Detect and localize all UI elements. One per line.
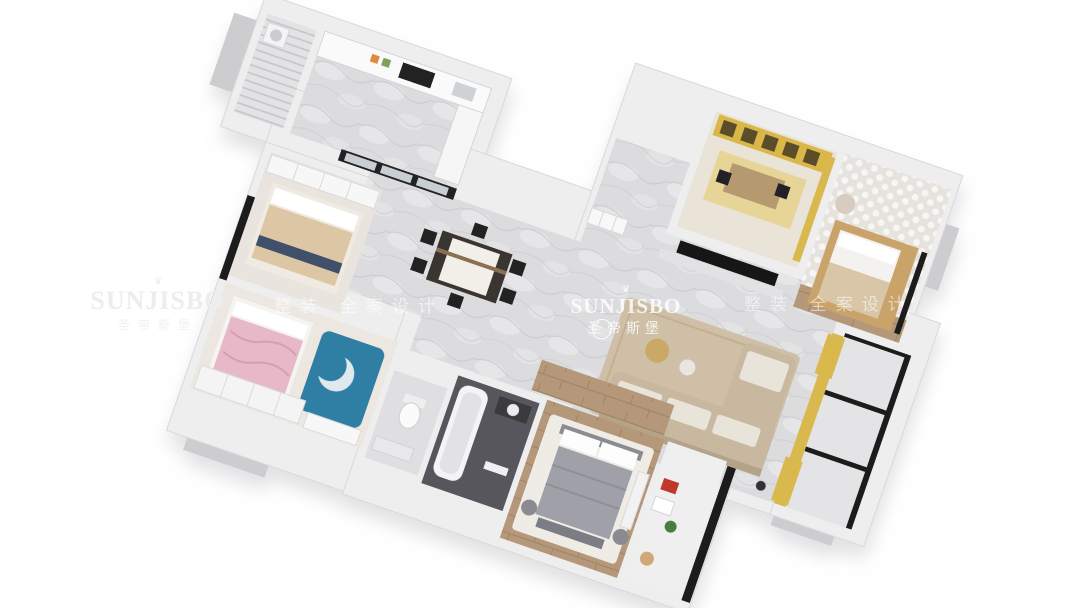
floorplan-canvas [0, 0, 1080, 608]
floorplan-render: ♛ SUNJISBO 圣帝斯堡 整装 全案设计 ♛ SUNJISBO 圣帝斯堡 … [0, 0, 1080, 608]
apartment-plan [94, 0, 988, 608]
